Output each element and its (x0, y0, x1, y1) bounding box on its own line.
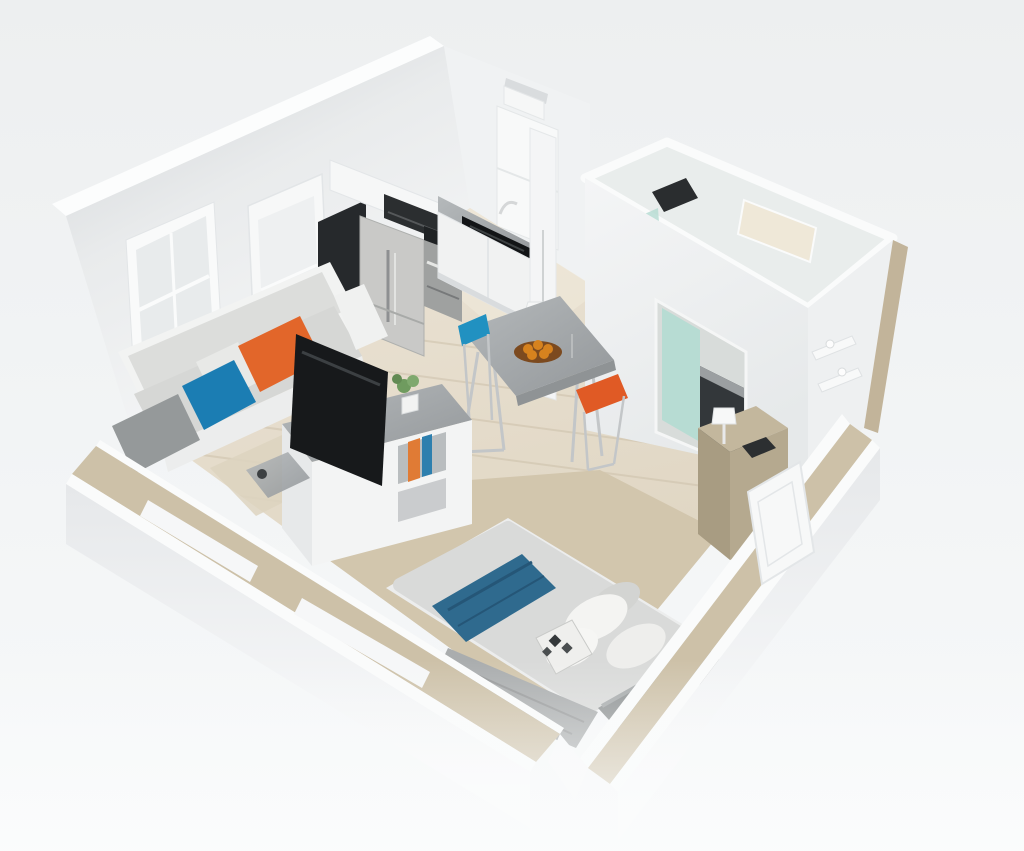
shower-glass-door (662, 308, 700, 442)
table-lamp (257, 469, 267, 479)
orange-book (408, 438, 420, 482)
shelf-vase (826, 340, 834, 348)
bottom-fade (0, 660, 1024, 851)
floorplan-3d-render (0, 0, 1024, 851)
shelf-vase (838, 368, 846, 376)
floorplan-svg (0, 0, 1024, 851)
blue-book (422, 434, 432, 477)
